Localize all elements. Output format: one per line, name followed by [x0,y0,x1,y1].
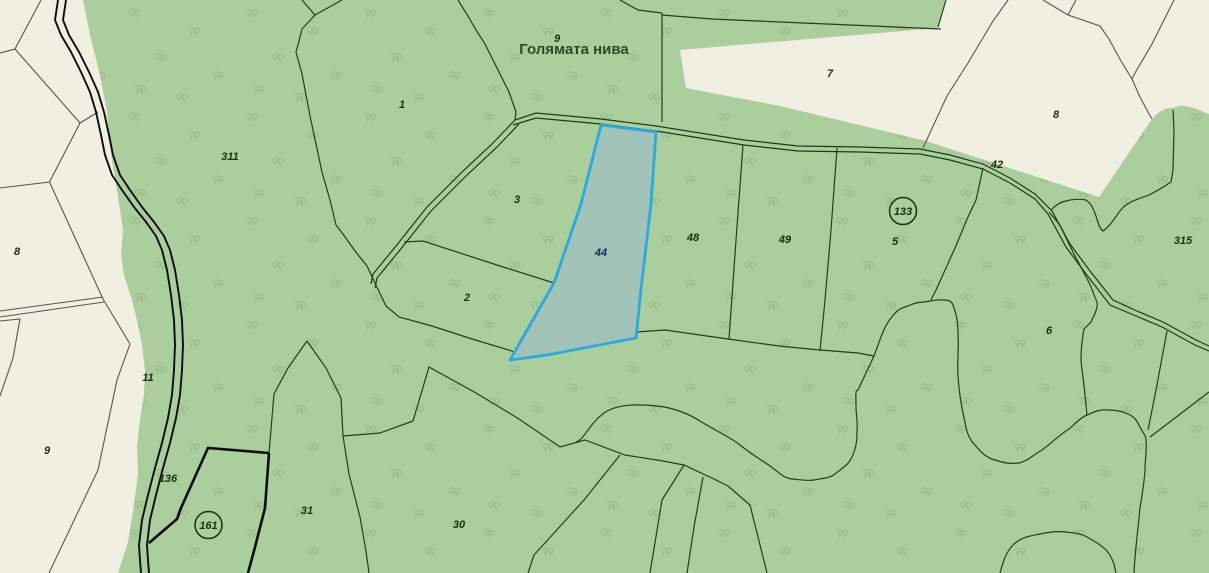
svg-text:8: 8 [1053,109,1060,121]
svg-text:1: 1 [399,99,405,111]
svg-text:2: 2 [463,292,470,304]
svg-text:49: 49 [778,234,792,246]
svg-text:3: 3 [514,194,520,206]
svg-text:6: 6 [1046,325,1053,337]
svg-text:9: 9 [44,445,51,457]
svg-text:7: 7 [827,68,834,80]
svg-text:5: 5 [892,236,899,248]
svg-text:315: 315 [1174,235,1193,247]
svg-text:161: 161 [199,520,217,532]
svg-text:133: 133 [894,206,912,218]
svg-text:48: 48 [686,232,700,244]
svg-text:136: 136 [159,473,178,485]
svg-text:44: 44 [594,247,607,259]
svg-text:31: 31 [301,505,313,517]
svg-text:8: 8 [14,246,21,258]
svg-text:11: 11 [142,372,153,384]
svg-text:30: 30 [453,519,466,531]
svg-text:311: 311 [221,151,239,163]
svg-text:42: 42 [990,159,1003,171]
svg-text:Голямата нива: Голямата нива [519,41,629,58]
